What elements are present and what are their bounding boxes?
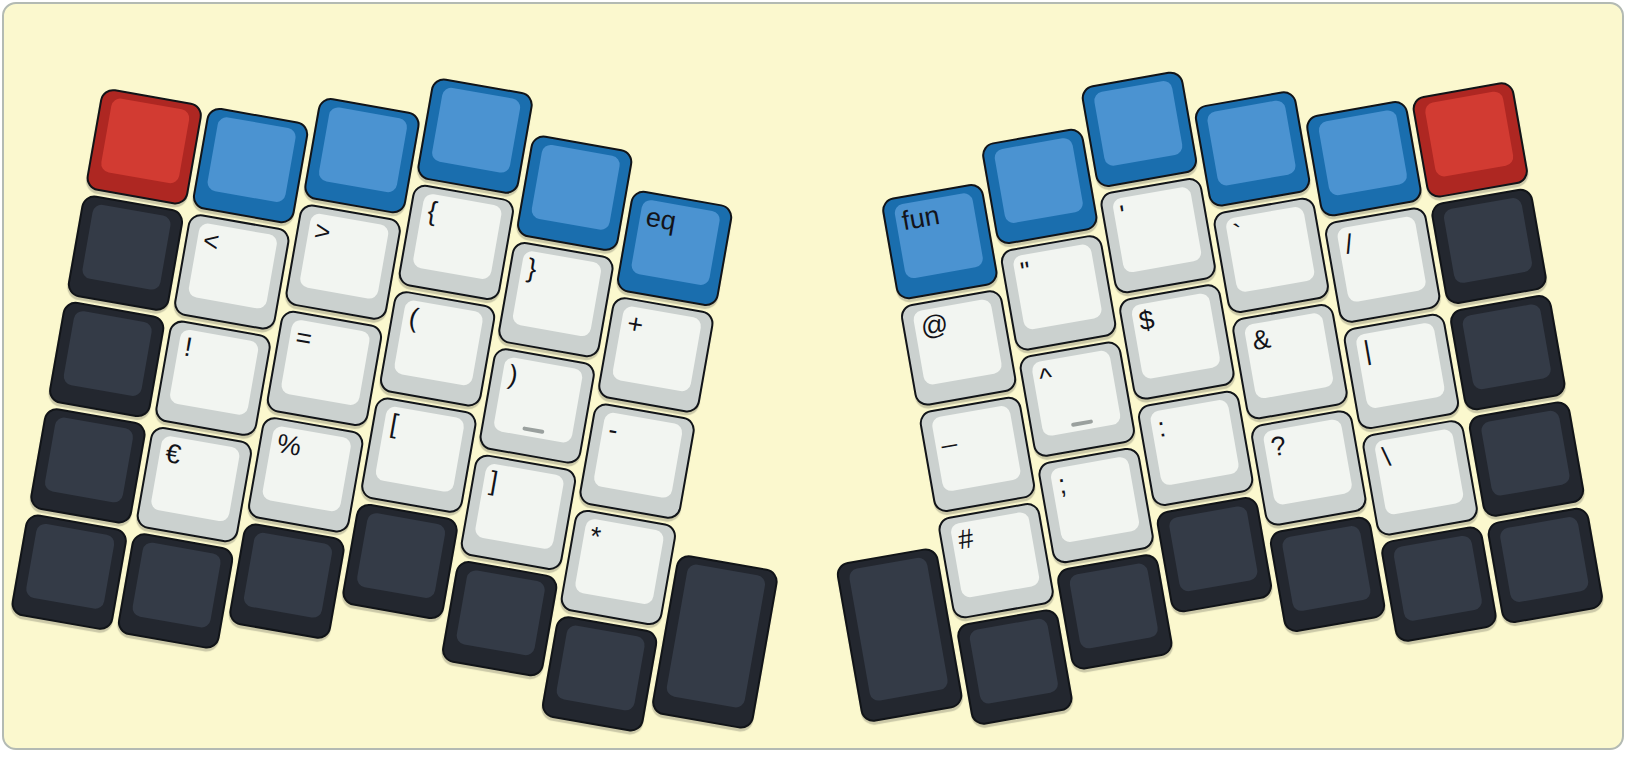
key-blue-blank[interactable] [980, 127, 1099, 246]
keycap-top [169, 329, 260, 417]
keycap-top [206, 116, 297, 204]
key-exclamation[interactable]: ! [153, 319, 272, 438]
key-dark-blank[interactable] [340, 502, 459, 621]
key-underscore[interactable]: _ [918, 395, 1037, 514]
key-dark-blank[interactable] [227, 521, 346, 640]
key-pipe[interactable]: | [1342, 312, 1461, 431]
key-semicolon[interactable]: ; [1036, 446, 1155, 565]
keycap-top [1168, 505, 1259, 593]
key-dark-blank[interactable] [1155, 495, 1274, 614]
key-dollar[interactable]: $ [1117, 282, 1236, 401]
key-apostrophe[interactable]: ' [1098, 176, 1217, 295]
keycap-top [243, 531, 334, 619]
keycap-top [44, 416, 135, 504]
key-legend: @ [918, 308, 950, 343]
key-close-paren[interactable]: ) [478, 346, 597, 465]
keycap-top [1206, 99, 1297, 187]
keycap-top [1093, 80, 1184, 168]
key-eq-layer[interactable]: eq [615, 189, 734, 308]
keycap-top [593, 411, 684, 499]
keycap-top [848, 556, 949, 702]
keycap-top [555, 624, 646, 712]
key-open-paren[interactable]: ( [378, 289, 497, 408]
keycap-top [412, 193, 503, 281]
key-blue-blank[interactable] [302, 96, 421, 215]
keycap-top [393, 299, 484, 387]
key-greater-than[interactable]: > [284, 202, 403, 321]
key-plus[interactable]: + [596, 295, 715, 414]
keycap-top [1480, 409, 1571, 497]
keycap-top [62, 310, 153, 398]
key-dark-blank[interactable] [116, 531, 235, 650]
key-dark-blank[interactable] [10, 513, 129, 632]
key-dark-blank[interactable] [440, 559, 559, 678]
keycap-top [993, 137, 1084, 225]
key-dark-blank[interactable] [66, 193, 185, 312]
key-double-quote[interactable]: " [999, 233, 1118, 352]
keycap-top [299, 212, 390, 300]
key-dark-blank[interactable] [1055, 552, 1174, 671]
key-slash[interactable]: / [1323, 205, 1442, 324]
key-open-bracket[interactable]: [ [359, 395, 478, 514]
keycap-top [1443, 197, 1534, 285]
keycap-top [611, 305, 702, 393]
keycap-top [530, 144, 621, 232]
key-blue-blank[interactable] [191, 106, 310, 225]
keycap-top [1499, 516, 1590, 604]
keycap-top [574, 518, 665, 606]
key-blue-blank[interactable] [515, 134, 634, 253]
key-backtick[interactable]: ` [1212, 196, 1331, 315]
key-open-brace[interactable]: { [397, 183, 516, 302]
keycap-top [100, 97, 191, 185]
key-dark-blank[interactable] [1486, 506, 1605, 625]
keycap-top [187, 222, 278, 310]
keycap-top [261, 425, 352, 513]
key-hash[interactable]: # [936, 501, 1055, 620]
keycap-top [356, 512, 447, 600]
key-dark-blank[interactable] [28, 406, 147, 525]
key-at-sign[interactable]: @ [899, 288, 1018, 407]
key-close-brace[interactable]: } [496, 240, 615, 359]
key-fun-layer[interactable]: fun [880, 182, 999, 301]
key-legend: fun [900, 200, 942, 237]
keyboard-layout-canvas: <!€>=%{([})]eq+-* fun@_#"^;'$:`&?/|\ [0, 0, 1628, 758]
key-blue-blank[interactable] [1193, 89, 1312, 208]
key-backslash[interactable]: \ [1361, 418, 1480, 537]
keycap-top [1424, 90, 1515, 178]
key-legend: eq [643, 202, 678, 238]
key-equals[interactable]: = [265, 309, 384, 428]
key-dark-blank[interactable] [1467, 399, 1586, 518]
key-dark-blank[interactable] [1379, 525, 1498, 644]
key-dark-blank[interactable] [1268, 515, 1387, 634]
key-close-bracket[interactable]: ] [459, 453, 578, 572]
keycap-top [455, 569, 546, 657]
key-caret[interactable]: ^ [1018, 339, 1137, 458]
key-red-blank[interactable] [1411, 80, 1530, 199]
keycap-top [25, 523, 116, 611]
keycap-top [1392, 534, 1483, 622]
key-ampersand[interactable]: & [1230, 302, 1349, 421]
key-minus[interactable]: - [577, 401, 696, 520]
keycap-top [968, 617, 1059, 705]
key-blue-blank[interactable] [1304, 99, 1423, 218]
key-colon[interactable]: : [1136, 389, 1255, 508]
keycap-top [1281, 525, 1372, 613]
keycap-top [1317, 109, 1408, 197]
keycap-top [1461, 303, 1552, 391]
key-red-blank[interactable] [85, 87, 204, 206]
keycap-top [665, 563, 766, 709]
key-dark-blank[interactable] [540, 614, 659, 733]
key-dark-blank[interactable] [1448, 293, 1567, 412]
keycap-top [512, 250, 603, 338]
key-dark-blank[interactable] [1429, 187, 1548, 306]
key-dark-blank[interactable] [47, 300, 166, 419]
key-dark-blank[interactable] [955, 607, 1074, 726]
key-percent[interactable]: % [246, 415, 365, 534]
key-asterisk[interactable]: * [559, 508, 678, 627]
keycap-top [374, 405, 465, 493]
keycap-top [150, 435, 241, 523]
key-less-than[interactable]: < [172, 212, 291, 331]
key-question[interactable]: ? [1249, 408, 1368, 527]
key-blue-blank[interactable] [415, 76, 534, 195]
keycap-top [280, 319, 371, 407]
keycap-top [474, 463, 565, 551]
key-blue-blank[interactable] [1080, 70, 1199, 189]
key-euro[interactable]: € [135, 425, 254, 544]
keycap-top [431, 86, 522, 174]
keycap-top [81, 203, 172, 291]
keycap-top [1068, 562, 1159, 650]
keycap-top [318, 106, 409, 194]
keycap-top [131, 541, 222, 629]
